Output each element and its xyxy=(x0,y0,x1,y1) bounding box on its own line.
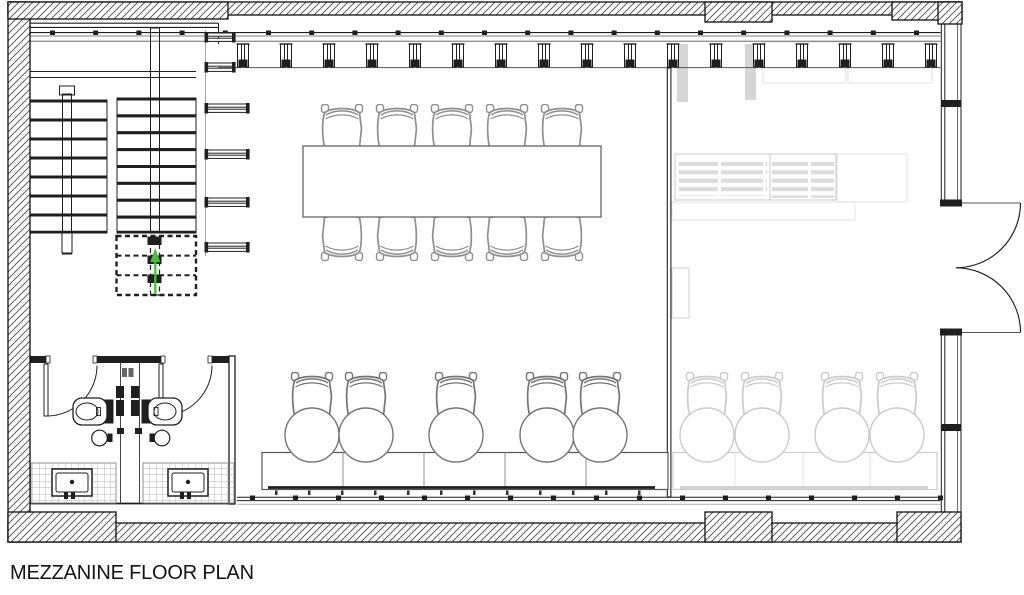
wall-corner xyxy=(938,2,962,24)
wall-left xyxy=(8,2,30,542)
door-leaf xyxy=(44,364,48,416)
stair-flight-left xyxy=(28,100,107,233)
toilet xyxy=(148,398,182,425)
toilet xyxy=(73,398,107,425)
wall-bottom xyxy=(8,523,961,542)
stair-flight-right xyxy=(117,98,196,233)
mullion-tick xyxy=(941,100,962,107)
ghost-shelf-slats xyxy=(679,158,767,196)
stair-stringer-foot xyxy=(62,233,72,253)
paper xyxy=(0,0,1024,595)
wall-pier xyxy=(705,2,772,22)
floor-plan-sheet: MEZZANINE FLOOR PLAN xyxy=(0,0,1024,595)
ghost-shelf-slats xyxy=(772,158,834,198)
washbasin xyxy=(154,430,170,446)
floor-plan-drawing xyxy=(0,0,1024,595)
partition-wall xyxy=(667,68,671,497)
conference-table xyxy=(303,146,601,217)
workstations-left xyxy=(262,373,668,496)
door-jamb xyxy=(940,329,962,336)
mullion-tick xyxy=(941,424,962,431)
top-sill-ticks xyxy=(50,31,919,36)
washbasin xyxy=(92,430,108,446)
wall-top-deep xyxy=(8,2,228,19)
door-jamb xyxy=(940,200,962,207)
wall-pier xyxy=(705,512,772,542)
wall-pier xyxy=(897,512,961,542)
wall-bottom-deep xyxy=(8,512,116,542)
conference-area xyxy=(303,105,601,261)
plan-title: MEZZANINE FLOOR PLAN xyxy=(10,562,254,585)
